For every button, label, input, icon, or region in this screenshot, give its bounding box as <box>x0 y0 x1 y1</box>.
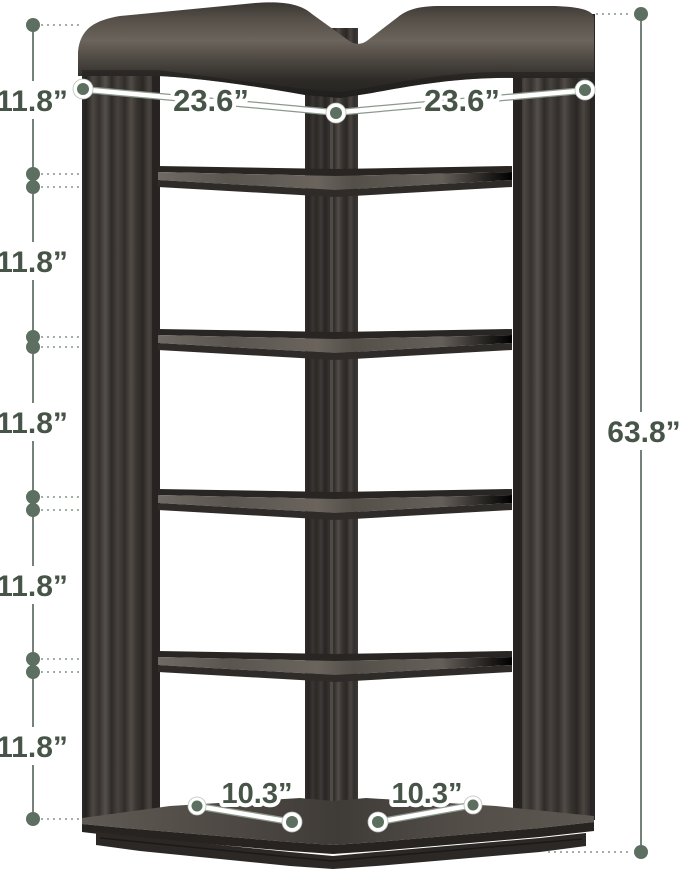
depth-dot-right-outer <box>464 796 482 814</box>
width-label-left: 23.6” <box>173 83 249 118</box>
depth-dot-left-outer <box>188 797 206 815</box>
shelf-board-3 <box>158 489 512 520</box>
left-side-panel <box>82 46 160 822</box>
tier-height-label-2: 11.8” <box>0 246 68 279</box>
left-panel-outer-edge <box>82 46 87 822</box>
depth-dot-right-inner <box>368 812 388 832</box>
right-side-panel <box>513 14 595 820</box>
left-panel-inner-edge <box>152 46 160 822</box>
corner-bookshelf-illustration: 23.6” 23.6” <box>0 0 679 871</box>
shelf-board-1 <box>158 166 512 197</box>
corner-post-edge-highlight <box>330 28 333 840</box>
depth-label-left: 10.3” <box>222 778 293 810</box>
depth-dot-left-inner <box>282 812 302 832</box>
tier-height-label-3: 11.8” <box>0 407 68 440</box>
tier-height-label-4: 11.8” <box>0 570 68 603</box>
right-panel-outer-edge <box>590 14 595 820</box>
right-panel-inner-edge <box>513 14 522 820</box>
shelf-unit <box>78 2 595 869</box>
corner-post-left-face <box>305 28 332 840</box>
shelf-board-4 <box>158 651 512 682</box>
tier-height-label-1: 11.8” <box>0 85 68 118</box>
width-dot-center <box>326 103 346 123</box>
depth-label-right: 10.3” <box>392 778 463 810</box>
total-height-label: 63.8” <box>607 416 679 449</box>
tier-height-label-5: 11.8” <box>0 731 68 764</box>
width-dot-right <box>575 80 595 100</box>
product-dimension-diagram: 23.6” 23.6” <box>0 0 679 871</box>
width-label-right: 23.6” <box>424 83 500 118</box>
shelf-board-2 <box>158 329 512 360</box>
width-dot-left <box>73 79 93 99</box>
